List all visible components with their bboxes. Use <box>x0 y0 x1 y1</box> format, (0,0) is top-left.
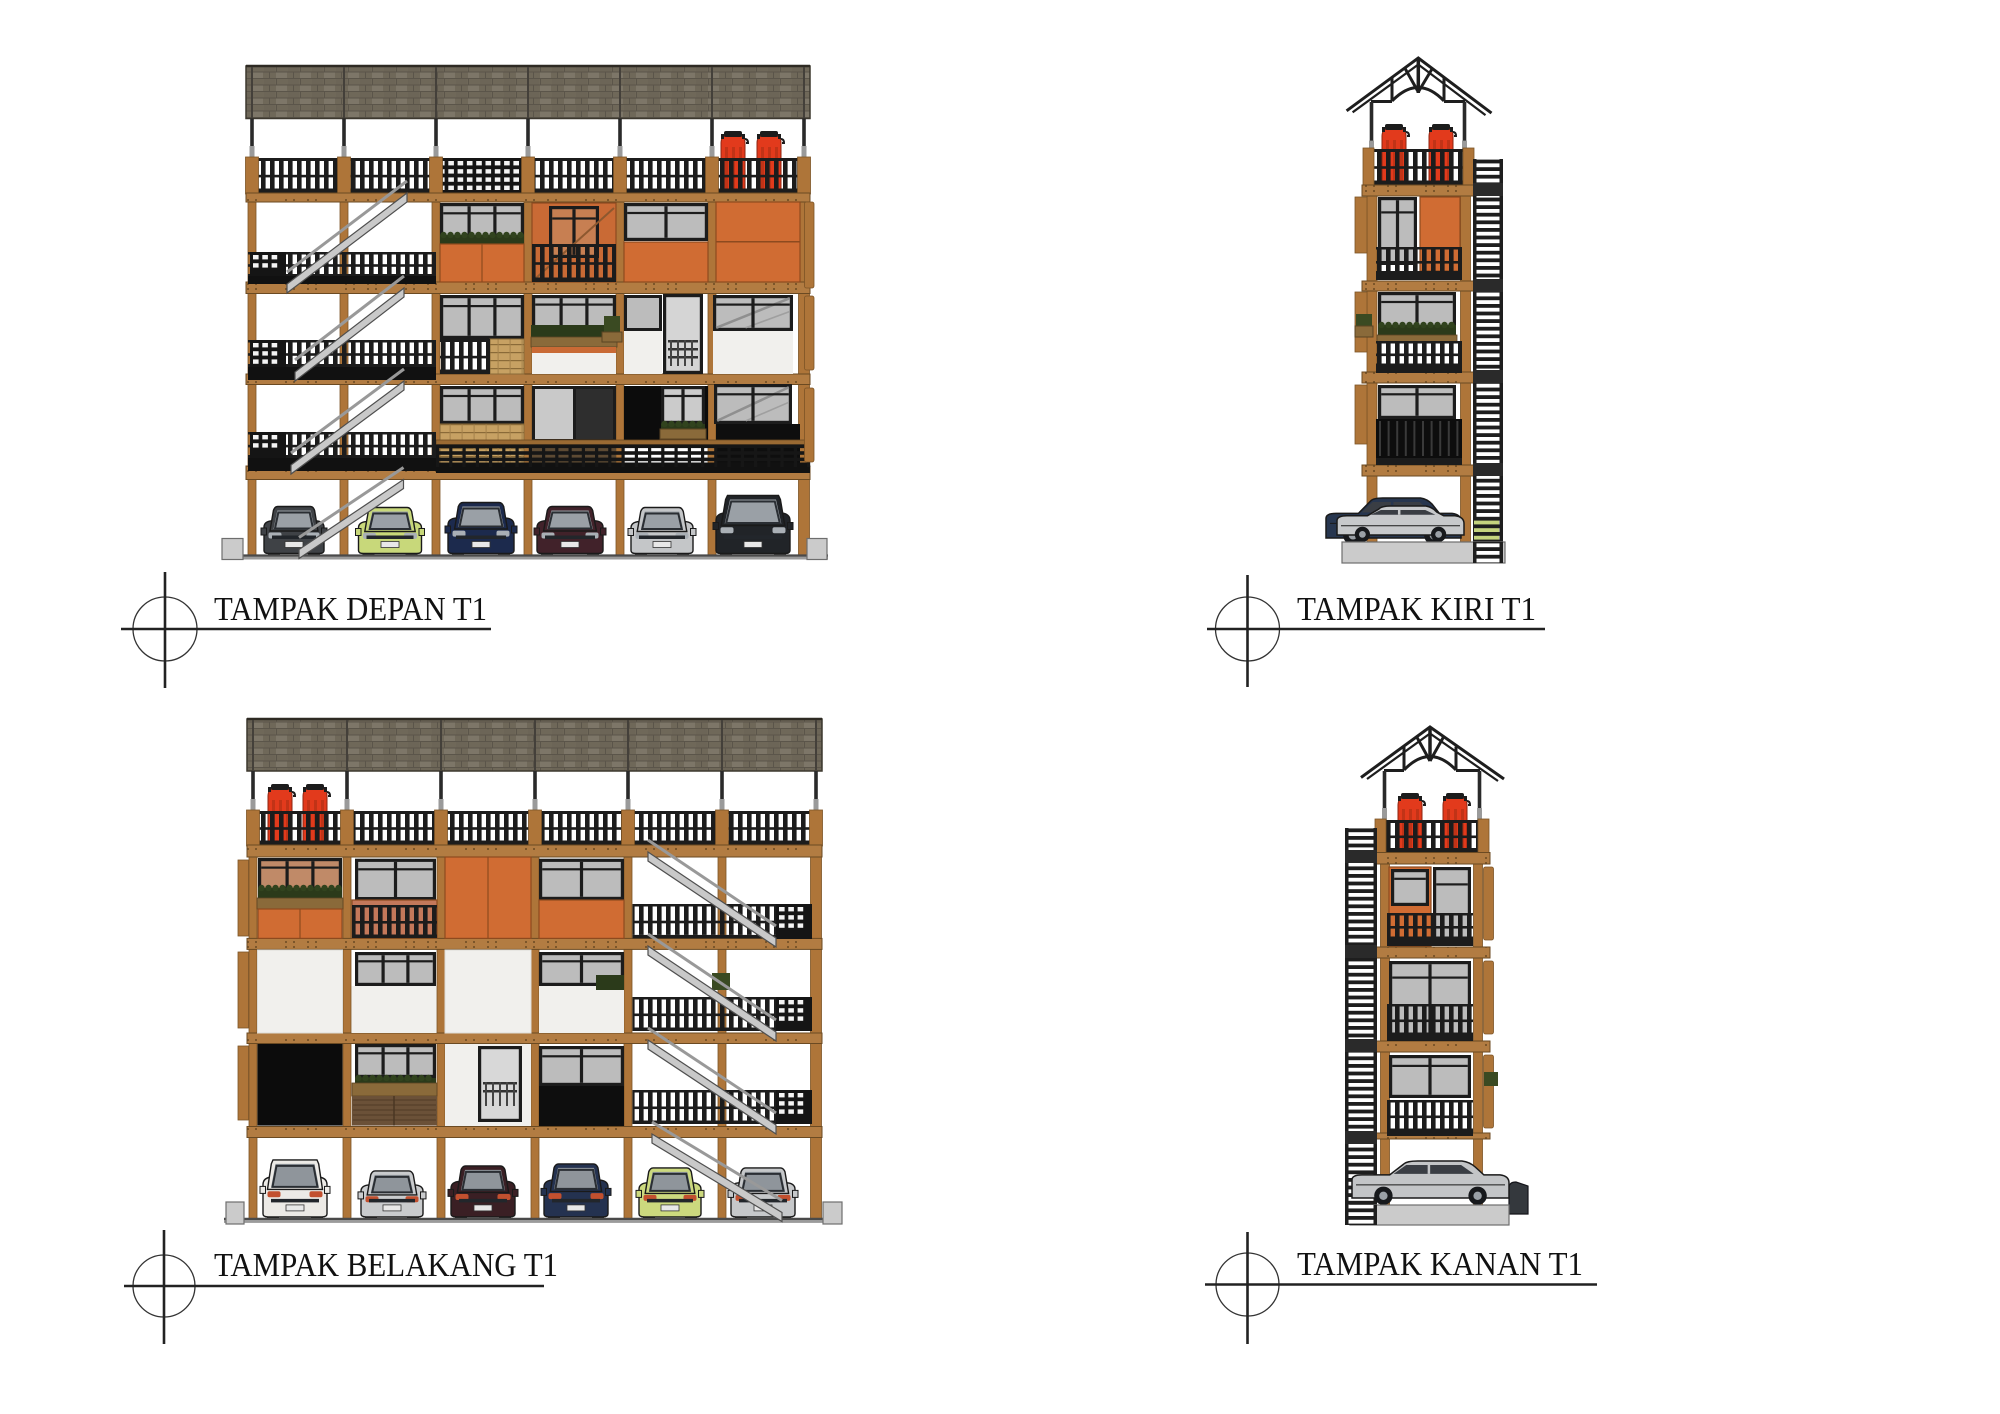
svg-text:TAMPAK BELAKANG T1: TAMPAK BELAKANG T1 <box>214 1247 558 1284</box>
svg-text:TAMPAK KANAN T1: TAMPAK KANAN T1 <box>1297 1246 1583 1283</box>
svg-text:TAMPAK DEPAN T1: TAMPAK DEPAN T1 <box>214 591 487 628</box>
svg-text:TAMPAK KIRI T1: TAMPAK KIRI T1 <box>1297 591 1536 628</box>
